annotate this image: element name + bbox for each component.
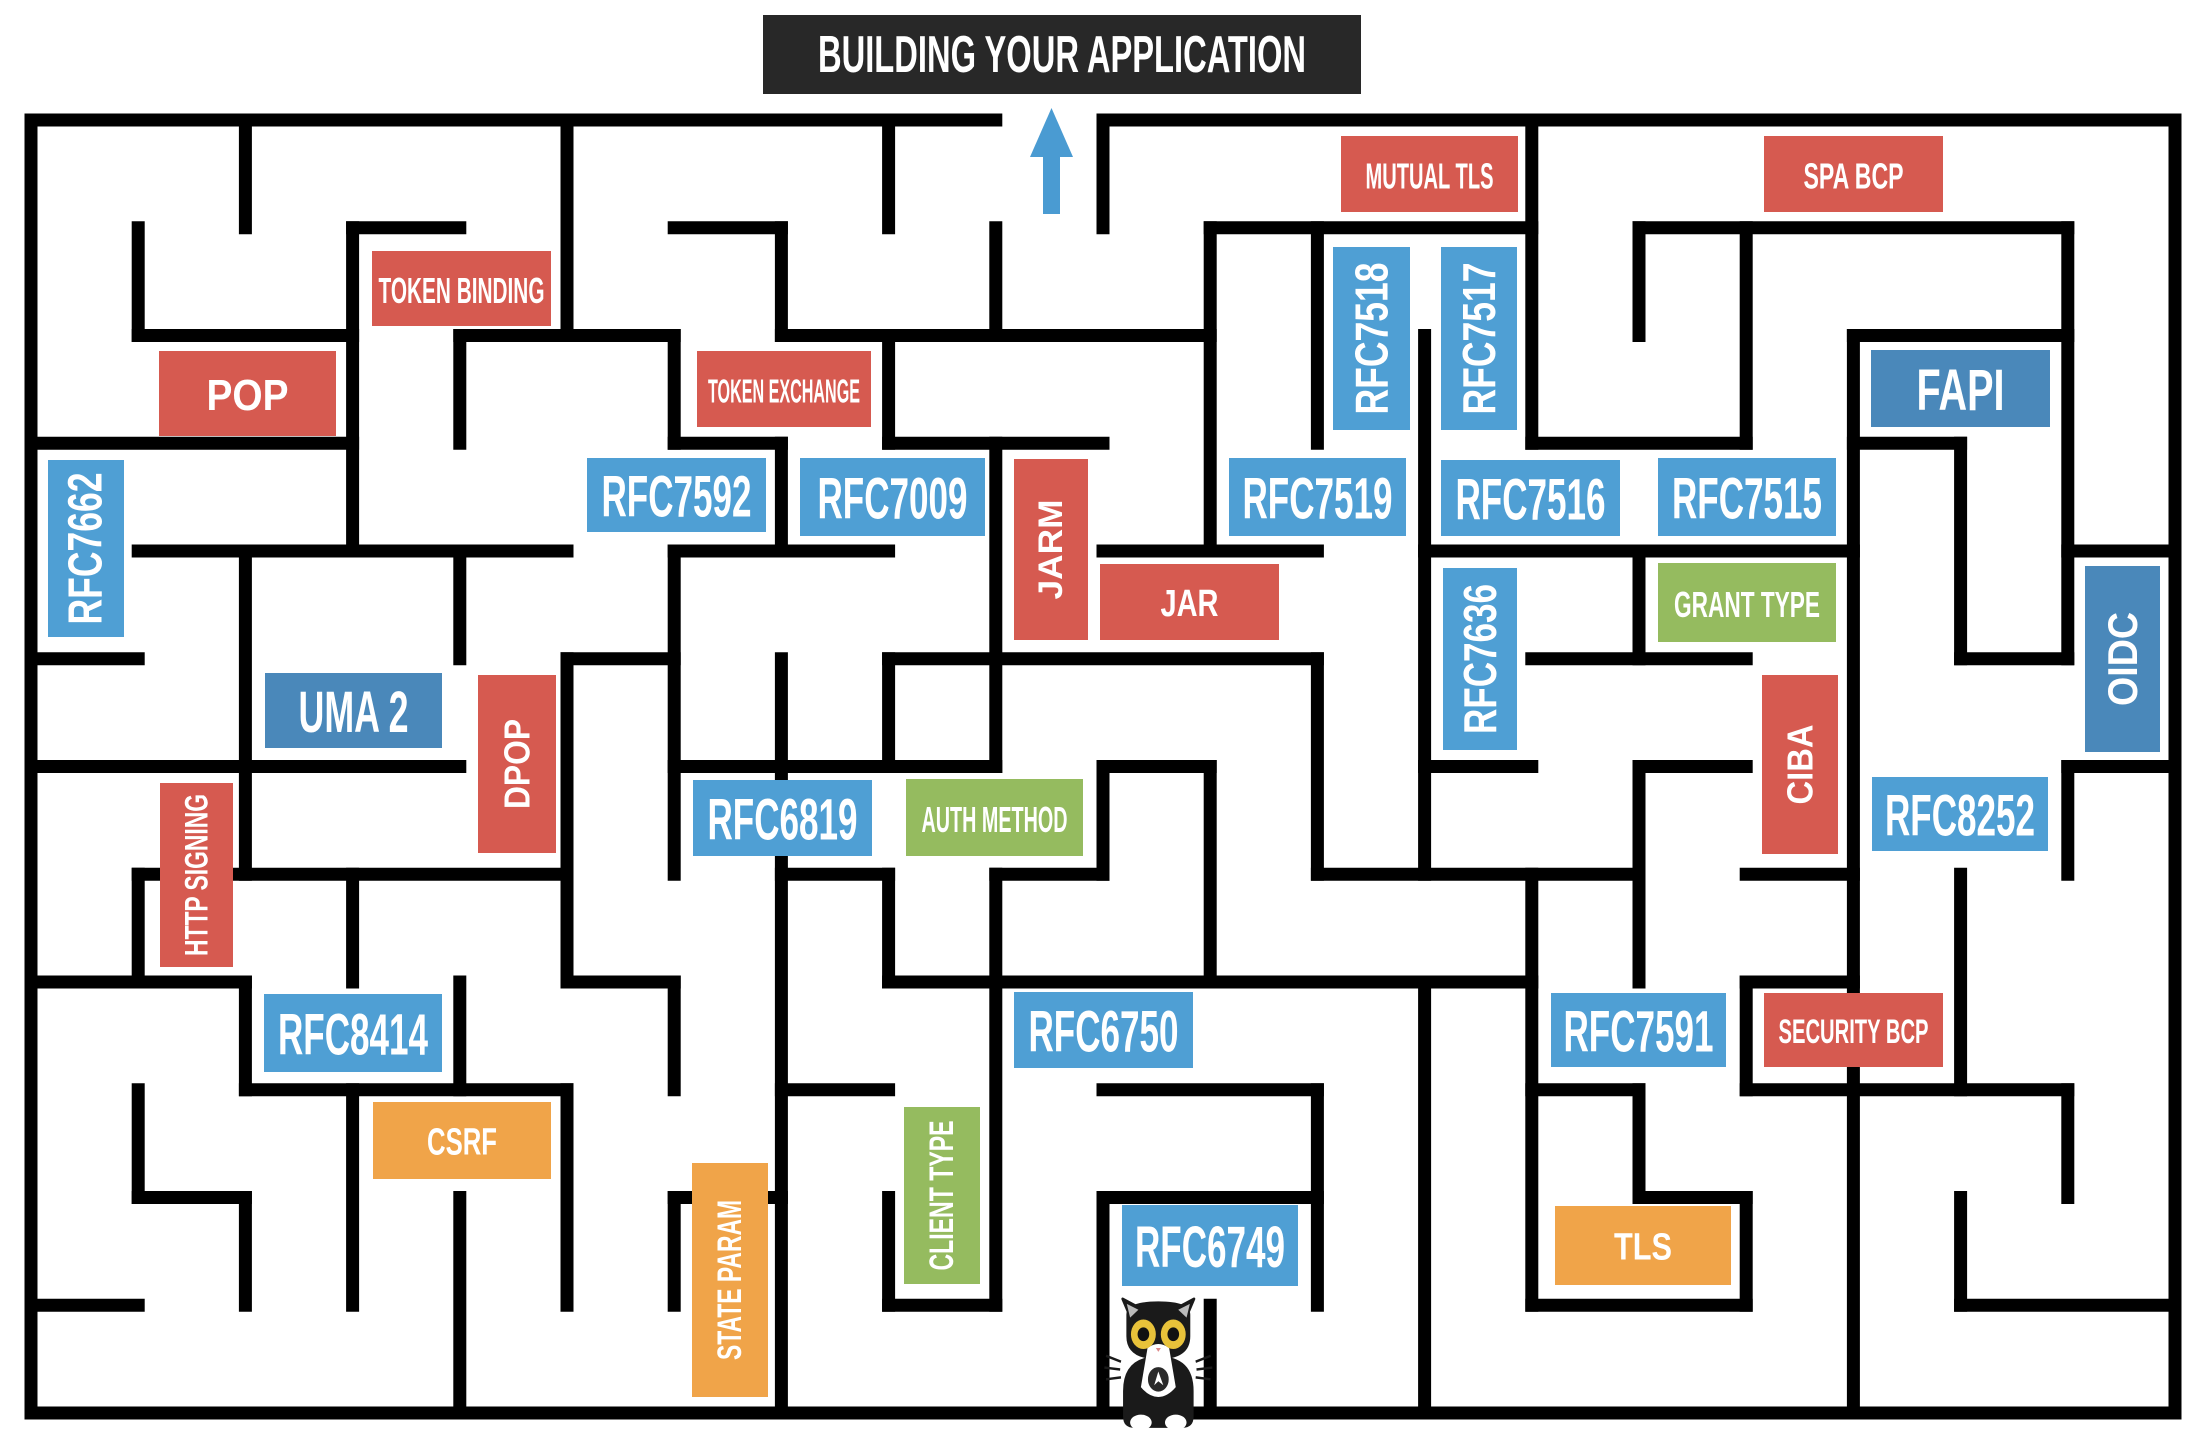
svg-text:TLS: TLS	[1614, 1227, 1672, 1269]
svg-text:RFC7591: RFC7591	[1564, 1000, 1714, 1065]
svg-text:JARM: JARM	[1032, 500, 1070, 600]
svg-text:TOKEN BINDING: TOKEN BINDING	[379, 270, 545, 311]
svg-text:AUTH METHOD: AUTH METHOD	[922, 799, 1068, 840]
svg-text:RFC6819: RFC6819	[708, 788, 858, 853]
svg-text:RFC8252: RFC8252	[1885, 784, 2035, 849]
svg-text:RFC7519: RFC7519	[1243, 467, 1393, 532]
svg-text:RFC6749: RFC6749	[1135, 1215, 1285, 1280]
svg-text:RFC6750: RFC6750	[1029, 1000, 1179, 1065]
svg-text:GRANT TYPE: GRANT TYPE	[1674, 584, 1820, 625]
svg-text:RFC8414: RFC8414	[278, 1003, 428, 1068]
svg-text:JAR: JAR	[1161, 583, 1219, 625]
svg-text:STATE PARAM: STATE PARAM	[711, 1200, 749, 1360]
svg-text:OIDC: OIDC	[2099, 612, 2146, 706]
svg-text:POP: POP	[207, 371, 289, 420]
svg-text:RFC7517: RFC7517	[1453, 263, 1505, 415]
svg-text:FAPI: FAPI	[1917, 358, 2005, 423]
svg-text:RFC7662: RFC7662	[60, 473, 113, 625]
svg-text:TOKEN EXCHANGE: TOKEN EXCHANGE	[708, 373, 860, 410]
svg-text:HTTP SIGNING: HTTP SIGNING	[179, 794, 215, 956]
svg-text:RFC7515: RFC7515	[1672, 467, 1822, 532]
svg-text:CSRF: CSRF	[427, 1122, 497, 1164]
svg-text:RFC7518: RFC7518	[1346, 263, 1398, 415]
svg-text:RFC7516: RFC7516	[1456, 468, 1606, 533]
svg-text:MUTUAL TLS: MUTUAL TLS	[1366, 156, 1494, 197]
svg-text:SECURITY BCP: SECURITY BCP	[1779, 1013, 1929, 1051]
svg-text:RFC7636: RFC7636	[1454, 584, 1506, 734]
svg-text:RFC7009: RFC7009	[818, 467, 968, 532]
svg-text:BUILDING YOUR APPLICATION: BUILDING YOUR APPLICATION	[818, 26, 1306, 84]
svg-text:RFC7592: RFC7592	[602, 465, 752, 530]
svg-text:DPOP: DPOP	[497, 719, 538, 809]
svg-text:UMA 2: UMA 2	[299, 680, 409, 745]
svg-text:CLIENT TYPE: CLIENT TYPE	[923, 1121, 961, 1271]
svg-text:SPA BCP: SPA BCP	[1804, 156, 1904, 197]
svg-text:CIBA: CIBA	[1780, 725, 1821, 805]
